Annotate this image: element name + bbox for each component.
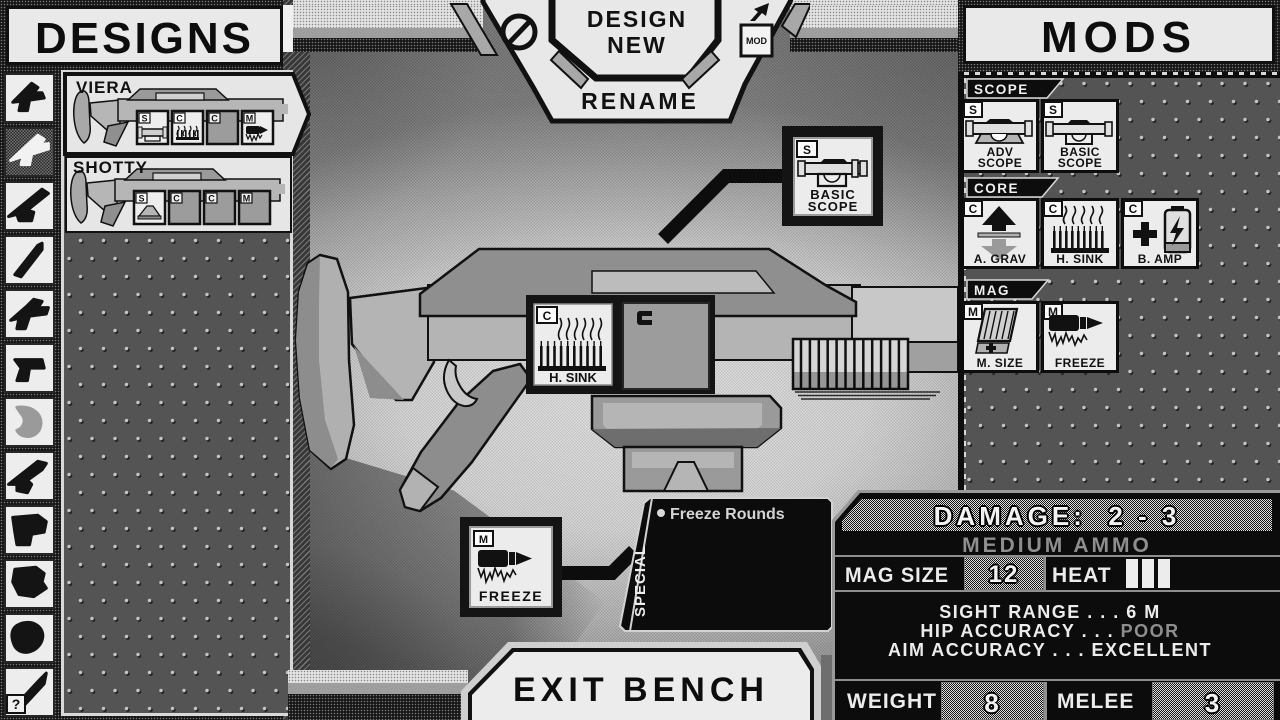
- svg-text:M. SIZE: M. SIZE: [977, 356, 1024, 370]
- svg-text:C: C: [969, 202, 978, 216]
- svg-text:S: S: [141, 114, 147, 124]
- svg-text:C: C: [173, 194, 180, 204]
- svg-text:Freeze Rounds: Freeze Rounds: [670, 506, 785, 523]
- svg-text:MOD: MOD: [746, 36, 767, 46]
- svg-text:SCOPE: SCOPE: [808, 199, 859, 214]
- svg-text:SCOPE: SCOPE: [978, 156, 1023, 170]
- svg-text:C: C: [208, 194, 215, 204]
- svg-text:S: S: [969, 103, 977, 117]
- svg-text:A. GRAV: A. GRAV: [974, 252, 1027, 266]
- svg-text:SCOPE: SCOPE: [1058, 156, 1103, 170]
- svg-text:C: C: [211, 114, 218, 124]
- svg-text:S: S: [803, 143, 811, 157]
- svg-text:CORE: CORE: [974, 181, 1019, 196]
- svg-text:SCOPE: SCOPE: [974, 82, 1029, 97]
- svg-text:M: M: [479, 534, 488, 546]
- svg-text:NEW: NEW: [607, 32, 667, 58]
- svg-text:M: M: [246, 114, 254, 124]
- svg-text:C: C: [1129, 202, 1138, 216]
- svg-text:S: S: [1049, 103, 1057, 117]
- svg-text:H. SINK: H. SINK: [1056, 252, 1104, 266]
- svg-text:C: C: [1049, 202, 1058, 216]
- svg-text:MAG: MAG: [974, 283, 1010, 298]
- svg-text:DESIGN: DESIGN: [587, 6, 687, 32]
- svg-text:M: M: [968, 305, 978, 319]
- svg-text:S: S: [138, 194, 144, 204]
- svg-text:RENAME: RENAME: [581, 88, 699, 114]
- svg-text:EXIT BENCH: EXIT BENCH: [513, 671, 769, 709]
- svg-text:FREEZE: FREEZE: [1055, 356, 1105, 370]
- svg-text:FREEZE: FREEZE: [479, 588, 543, 604]
- svg-text:B. AMP: B. AMP: [1138, 252, 1183, 266]
- svg-text:M: M: [243, 194, 251, 204]
- svg-text:C: C: [176, 114, 183, 124]
- svg-text:SPECIAL: SPECIAL: [632, 545, 649, 617]
